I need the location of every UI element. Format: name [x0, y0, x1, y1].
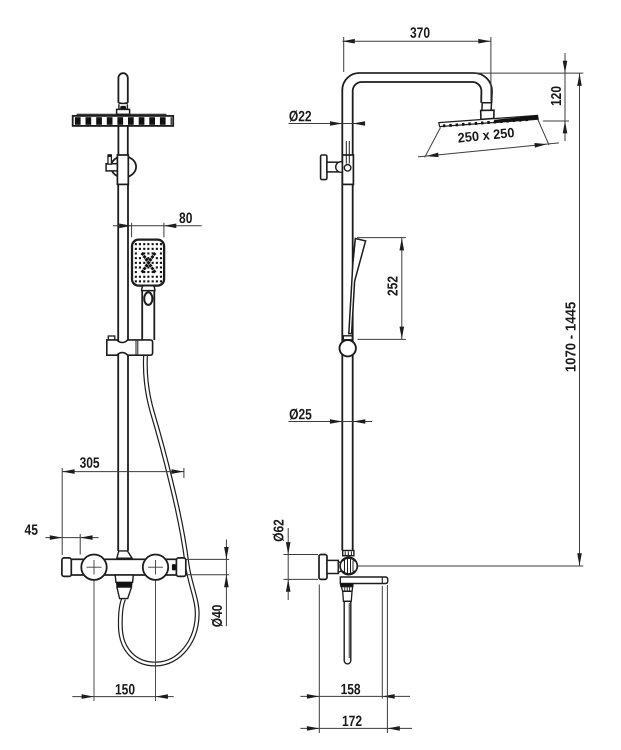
svg-text:370: 370: [410, 25, 430, 42]
svg-text:Ø25: Ø25: [289, 406, 312, 423]
svg-text:Ø62: Ø62: [270, 519, 287, 542]
svg-text:80: 80: [179, 210, 192, 227]
svg-text:120: 120: [548, 86, 565, 106]
svg-text:45: 45: [25, 522, 39, 539]
svg-text:1070 - 1445: 1070 - 1445: [562, 302, 579, 373]
svg-text:150: 150: [115, 681, 135, 698]
svg-text:158: 158: [341, 681, 361, 698]
svg-text:252: 252: [384, 276, 401, 296]
svg-text:305: 305: [80, 455, 100, 472]
svg-text:172: 172: [342, 713, 362, 730]
svg-text:Ø40: Ø40: [209, 605, 226, 628]
svg-text:Ø22: Ø22: [289, 108, 312, 125]
